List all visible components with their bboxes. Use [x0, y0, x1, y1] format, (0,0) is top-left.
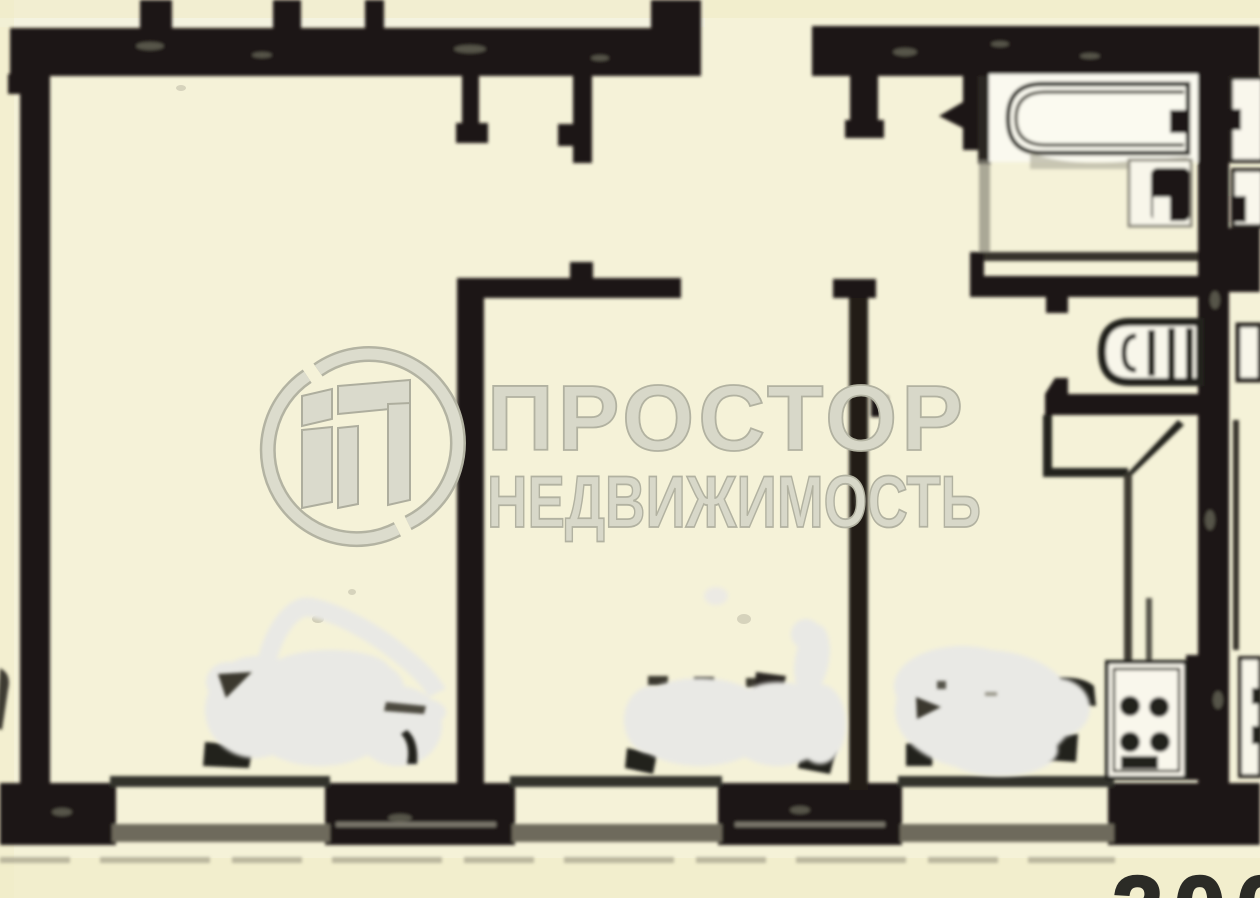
- svg-text:200: 200: [1112, 858, 1260, 898]
- svg-text:ПРОСТОР: ПРОСТОР: [487, 366, 967, 470]
- svg-text:НЕДВИЖИМОСТЬ: НЕДВИЖИМОСТЬ: [487, 462, 981, 543]
